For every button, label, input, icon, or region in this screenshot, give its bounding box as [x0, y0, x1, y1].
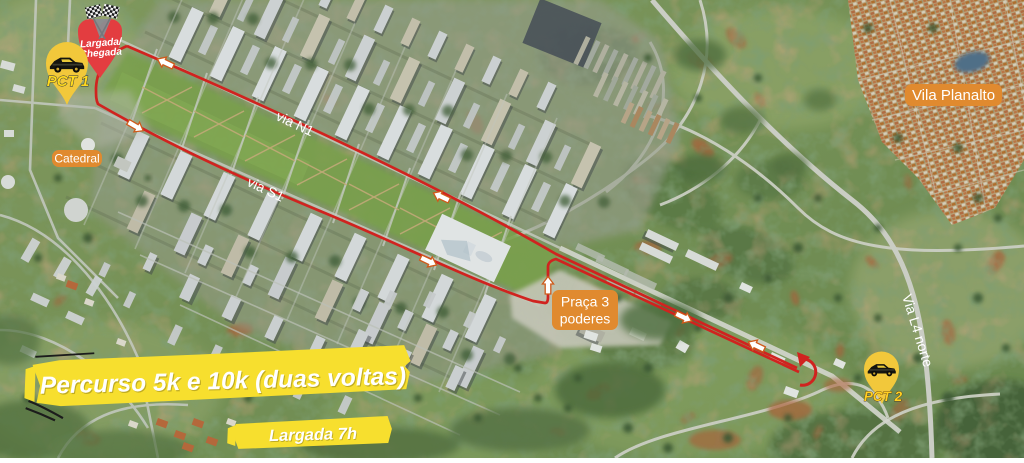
- svg-text:Largada 7h: Largada 7h: [269, 425, 357, 445]
- svg-text:Catedral: Catedral: [54, 152, 99, 166]
- svg-text:Vila Planalto: Vila Planalto: [912, 87, 995, 104]
- svg-text:PCT 1: PCT 1: [47, 73, 90, 90]
- svg-text:PCT 2: PCT 2: [864, 389, 903, 404]
- svg-text:poderes: poderes: [560, 310, 611, 326]
- svg-text:Praça 3: Praça 3: [561, 293, 609, 309]
